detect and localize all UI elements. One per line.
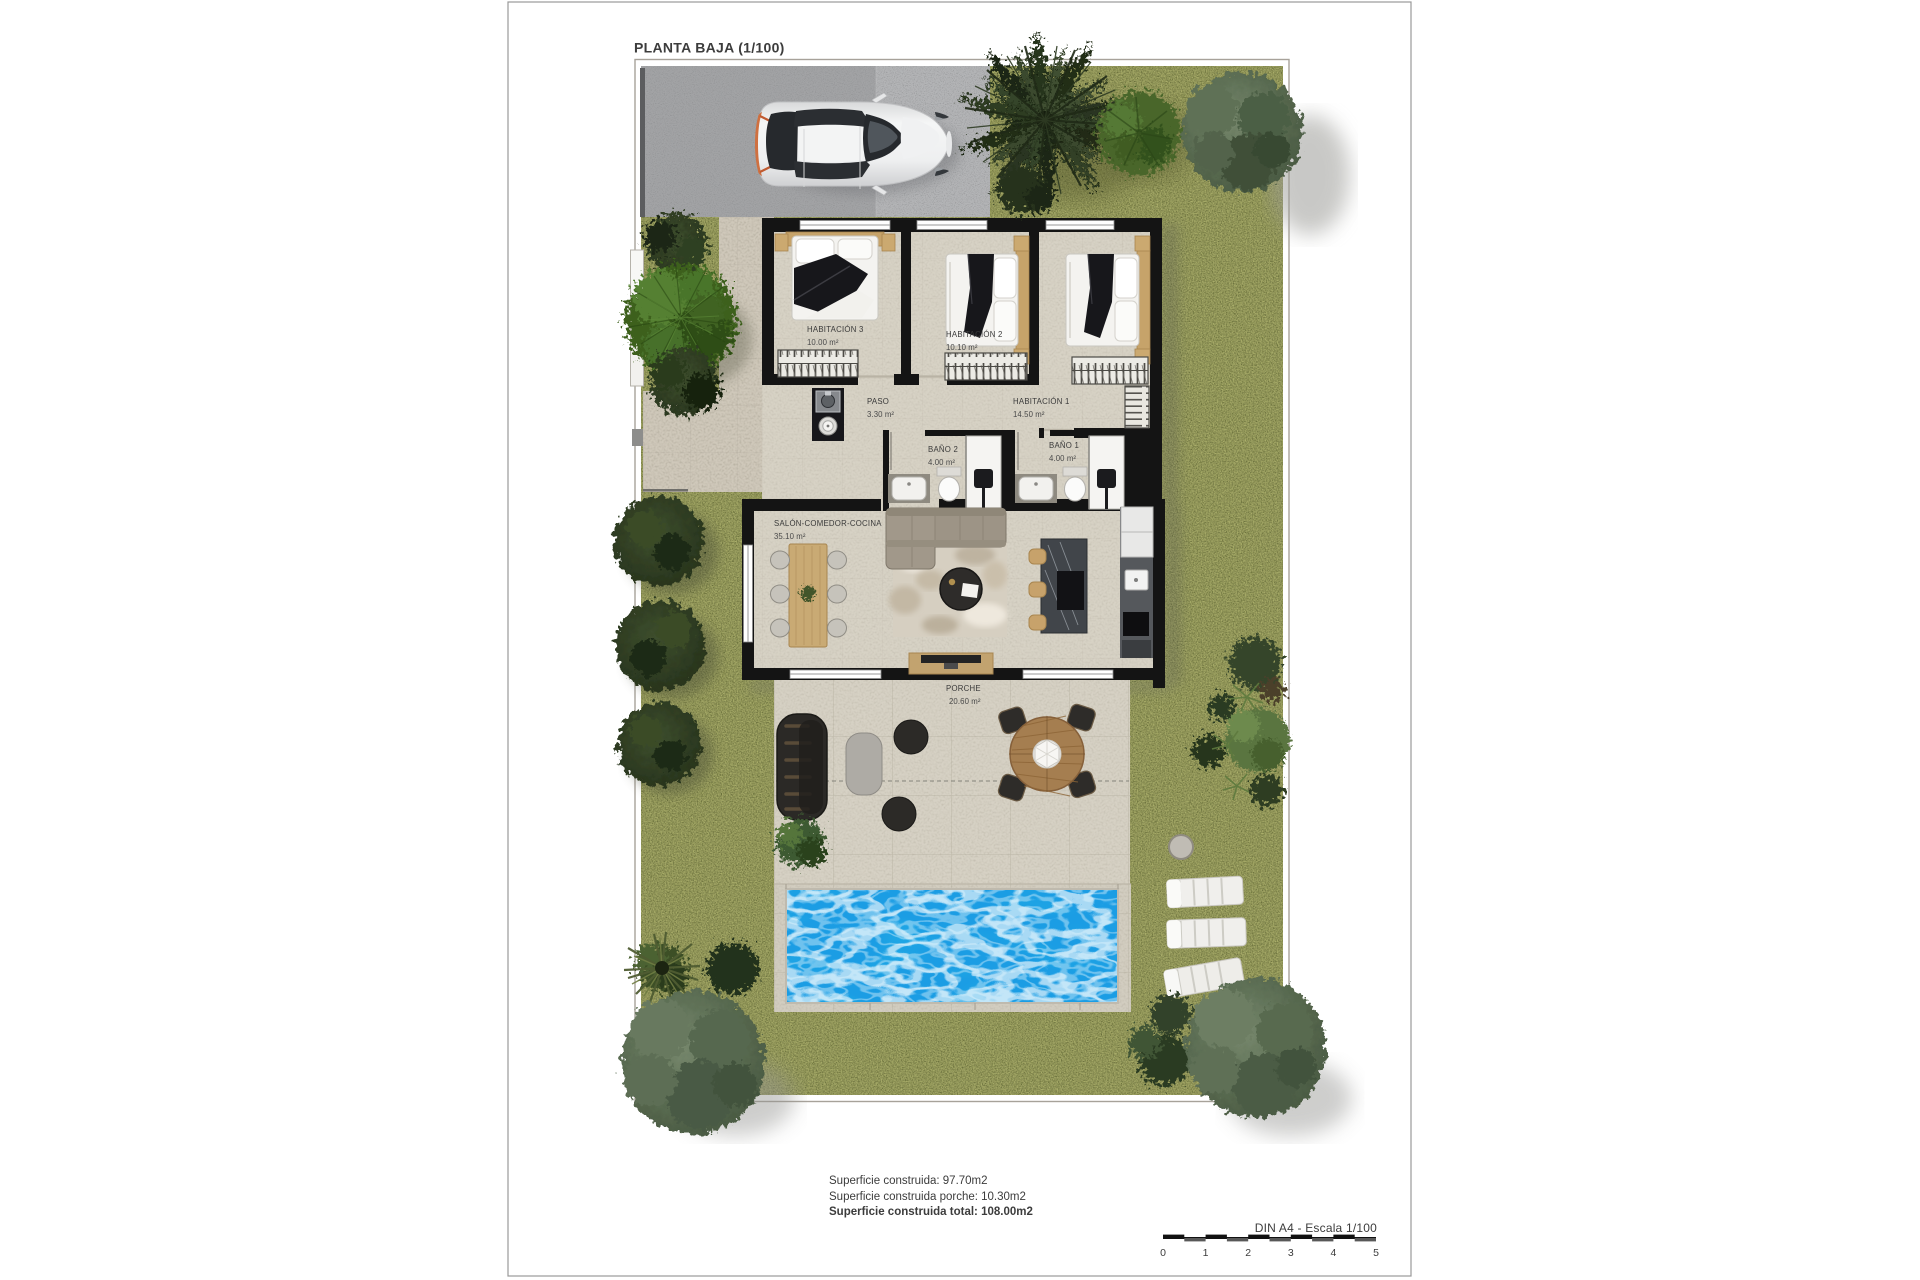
svg-text:PLANTA BAJA (1/100): PLANTA BAJA (1/100) [634, 40, 785, 56]
svg-text:3: 3 [1288, 1247, 1294, 1259]
svg-text:4.00 m²: 4.00 m² [928, 458, 955, 467]
svg-text:HABITACIÓN 3: HABITACIÓN 3 [807, 325, 864, 334]
svg-text:5: 5 [1373, 1247, 1379, 1259]
svg-text:DIN A4 - Escala 1/100: DIN A4 - Escala 1/100 [1255, 1221, 1377, 1235]
svg-text:1: 1 [1203, 1247, 1209, 1259]
svg-text:PORCHE: PORCHE [946, 684, 981, 693]
svg-text:10.10 m²: 10.10 m² [946, 343, 978, 352]
svg-text:BAÑO 2: BAÑO 2 [928, 445, 958, 454]
svg-text:Superficie construida total: 1: Superficie construida total: 108.00m2 [829, 1206, 1033, 1218]
svg-text:Superficie construida: 97.70m2: Superficie construida: 97.70m2 [829, 1175, 988, 1187]
svg-text:Superficie construida porche:: Superficie construida porche: 10.30m2 [829, 1191, 1026, 1203]
svg-text:PASO: PASO [867, 397, 889, 406]
svg-text:HABITACIÓN 2: HABITACIÓN 2 [946, 330, 1003, 339]
svg-text:3.30 m²: 3.30 m² [867, 410, 894, 419]
svg-text:20.60 m²: 20.60 m² [949, 697, 981, 706]
svg-text:2: 2 [1245, 1247, 1251, 1259]
svg-text:14.50 m²: 14.50 m² [1013, 410, 1045, 419]
svg-text:10.00 m²: 10.00 m² [807, 338, 839, 347]
svg-text:HABITACIÓN 1: HABITACIÓN 1 [1013, 397, 1070, 406]
svg-text:BAÑO 1: BAÑO 1 [1049, 441, 1079, 450]
svg-text:4: 4 [1330, 1247, 1336, 1259]
svg-text:35.10 m²: 35.10 m² [774, 532, 806, 541]
svg-text:SALÓN-COMEDOR-COCINA: SALÓN-COMEDOR-COCINA [774, 519, 882, 528]
svg-text:4.00 m²: 4.00 m² [1049, 454, 1076, 463]
svg-text:0: 0 [1160, 1247, 1166, 1259]
